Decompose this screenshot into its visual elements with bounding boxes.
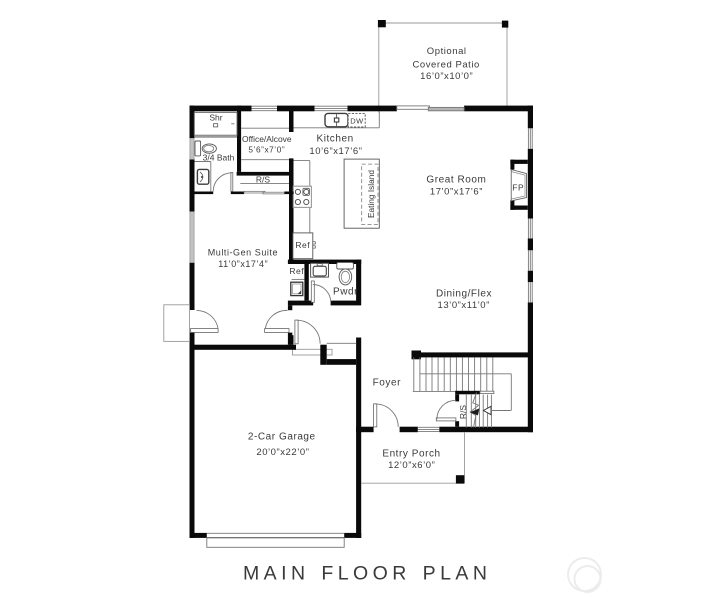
svg-text:Kitchen: Kitchen: [316, 134, 353, 145]
svg-text:FP: FP: [512, 182, 524, 192]
svg-text:Shr: Shr: [209, 113, 222, 123]
svg-text:Dining/Flex: Dining/Flex: [436, 288, 492, 299]
svg-text:17’0”x17’6”: 17’0”x17’6”: [430, 186, 483, 197]
svg-text:2-Car Garage: 2-Car Garage: [248, 432, 316, 443]
svg-text:5’6”x7’0”: 5’6”x7’0”: [248, 144, 285, 154]
svg-text:Ref: Ref: [289, 266, 304, 276]
svg-text:Ref: Ref: [295, 240, 310, 250]
svg-text:Optional: Optional: [427, 46, 467, 57]
svg-text:11’0”x17’4”: 11’0”x17’4”: [218, 259, 268, 269]
svg-text:Eating Island: Eating Island: [366, 170, 376, 218]
svg-text:Great Room: Great Room: [426, 175, 486, 186]
svg-text:Multi-Gen Suite: Multi-Gen Suite: [208, 247, 278, 257]
svg-text:10’6”x17’6”: 10’6”x17’6”: [309, 146, 362, 157]
svg-text:20’0”x22’0”: 20’0”x22’0”: [256, 447, 309, 458]
svg-text:MAIN FLOOR PLAN: MAIN FLOOR PLAN: [243, 563, 491, 585]
svg-text:12’0”x6’0”: 12’0”x6’0”: [388, 460, 435, 471]
svg-text:R/S: R/S: [256, 175, 271, 185]
svg-text:DW: DW: [350, 116, 364, 125]
svg-text:R/S: R/S: [458, 405, 468, 420]
svg-text:13’0”x11’0”: 13’0”x11’0”: [438, 300, 490, 311]
svg-text:Pwdr: Pwdr: [333, 287, 358, 298]
svg-text:16’0”x10’0”: 16’0”x10’0”: [420, 71, 473, 82]
svg-text:3/4 Bath: 3/4 Bath: [203, 152, 235, 162]
svg-text:Foyer: Foyer: [373, 378, 401, 389]
svg-text:Entry Porch: Entry Porch: [382, 448, 440, 459]
svg-text:Office/Alcove: Office/Alcove: [242, 134, 292, 144]
svg-text:Covered Patio: Covered Patio: [413, 59, 480, 70]
